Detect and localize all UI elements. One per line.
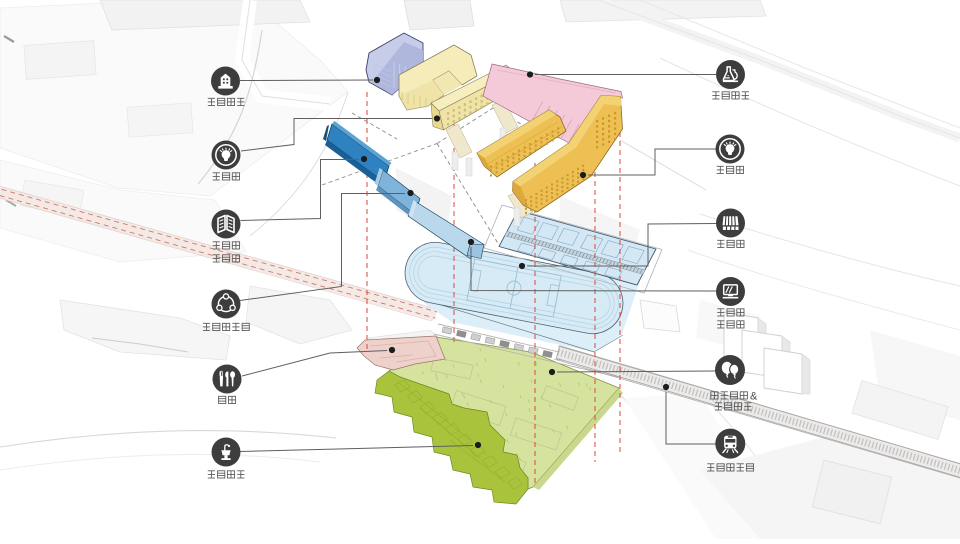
svg-text:&: & <box>750 391 758 403</box>
